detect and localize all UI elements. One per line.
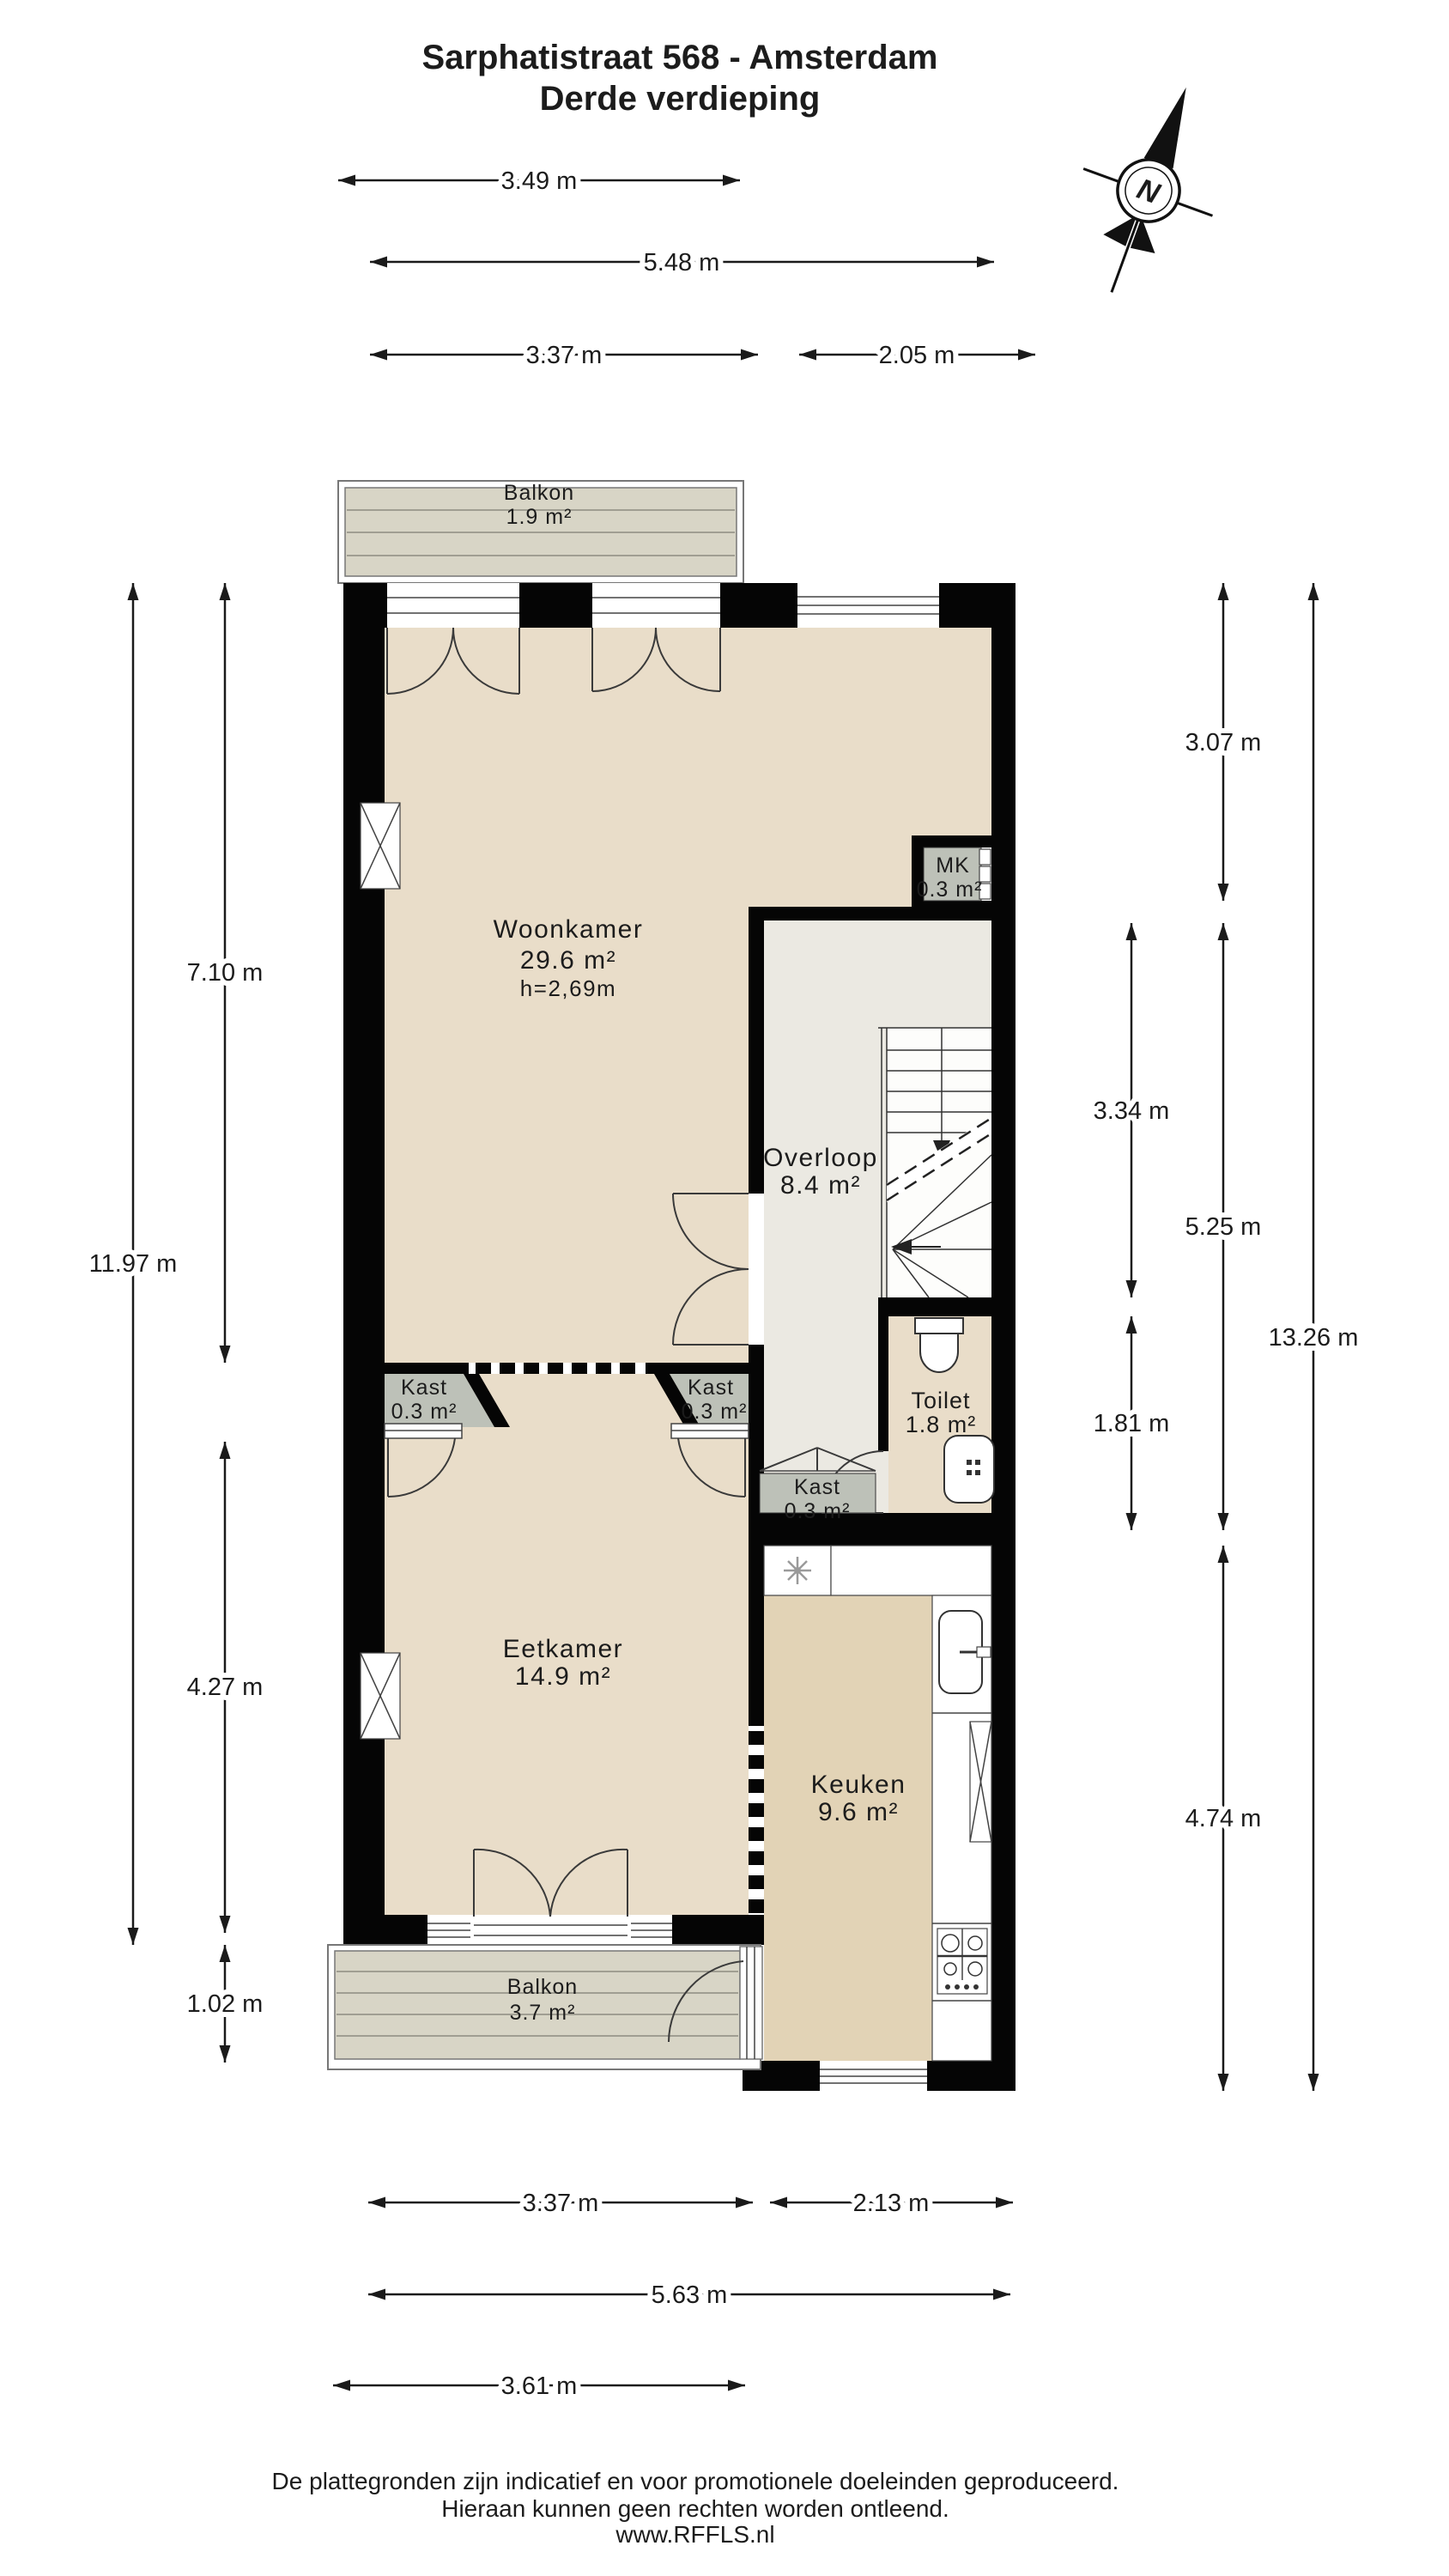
staircase <box>878 1028 991 1297</box>
dim-right-181: 1.81 m <box>1094 1410 1170 1437</box>
woonkamer-area: 29.6 m² <box>520 946 616 975</box>
balcony-top: Balkon 1.9 m² <box>338 481 743 583</box>
dim-top-337: 3.37 m <box>526 342 603 369</box>
woonkamer-name: Woonkamer <box>494 915 644 944</box>
dim-right-1326: 13.26 m <box>1269 1324 1359 1352</box>
chimney-woonkamer-icon <box>361 803 400 889</box>
dim-left-427: 4.27 m <box>187 1674 264 1701</box>
woonkamer-height: h=2,69m <box>520 975 616 1001</box>
balkon-top-area: 1.9 m² <box>506 505 573 529</box>
stove-icon <box>937 1929 987 1994</box>
window-keuken-bottom <box>820 2061 927 2091</box>
compass-rose-icon: N <box>1047 64 1251 315</box>
balkon-bottom-area: 3.7 m² <box>510 2001 576 2025</box>
keuken-name: Keuken <box>811 1771 906 1799</box>
toilet-area: 1.8 m² <box>906 1412 977 1437</box>
wall-eetkamer-bottom-right <box>672 1915 764 1945</box>
chimney-eetkamer-icon <box>361 1653 400 1739</box>
footer-disclaimer-line2: Hieraan kunnen geen rechten worden ontle… <box>441 2495 949 2522</box>
footer-website: www.RFFLS.nl <box>615 2521 774 2548</box>
wall-keuken-bottom-right <box>927 2061 1016 2091</box>
dim-bottom-213: 2.13 m <box>853 2190 930 2217</box>
wall-stair-bottom <box>878 1297 1016 1316</box>
opening-dashed-eetkamer-keuken <box>749 1726 764 1915</box>
mk-cupboard: MK 0.3 m² <box>917 848 991 902</box>
mk-area: 0.3 m² <box>917 878 983 902</box>
toilet-name: Toilet <box>911 1388 970 1413</box>
wall-overloop-upper <box>749 907 764 1194</box>
dim-top-205: 2.05 m <box>879 342 955 369</box>
dim-top-548: 5.48 m <box>644 249 720 276</box>
dim-right-474: 4.74 m <box>1185 1805 1262 1832</box>
balkon-bottom-name: Balkon <box>507 1975 578 1999</box>
dim-left-710: 7.10 m <box>187 959 264 987</box>
keuken-area: 9.6 m² <box>818 1798 899 1826</box>
washbasin-icon <box>944 1436 994 1503</box>
balkon-top-name: Balkon <box>504 481 574 505</box>
dim-left-102: 1.02 m <box>187 1990 264 2018</box>
floorplan-canvas: Sarphatistraat 568 - Amsterdam Derde ver… <box>0 0 1449 2576</box>
kast-trap-name: Kast <box>794 1475 840 1499</box>
dim-top-349: 3.49 m <box>501 167 578 195</box>
dim-right-307: 3.07 m <box>1185 729 1262 756</box>
dim-bottom-563: 5.63 m <box>652 2281 728 2309</box>
dim-bottom-337: 3.37 m <box>523 2190 599 2217</box>
overloop-area: 8.4 m² <box>780 1171 861 1200</box>
wall-mk-bottom <box>912 901 991 920</box>
page-title-line2: Derde verdieping <box>540 80 821 118</box>
kast-left-name: Kast <box>401 1376 447 1400</box>
window-top-right <box>797 583 939 628</box>
wall-right <box>991 583 1016 2091</box>
wall-eetkamer-bottom-left <box>343 1915 427 1945</box>
eetkamer-area: 14.9 m² <box>515 1662 611 1691</box>
dim-left-1197: 11.97 m <box>89 1250 178 1278</box>
opening-dashed-woonkamer-eetkamer <box>469 1363 646 1374</box>
page-title-line1: Sarphatistraat 568 - Amsterdam <box>422 39 938 76</box>
mk-name: MK <box>936 854 970 878</box>
counter-top-strip <box>831 1546 991 1595</box>
overloop-name: Overloop <box>763 1144 878 1172</box>
eetkamer-name: Eetkamer <box>503 1635 623 1663</box>
footer-disclaimer-line1: De plattegronden zijn indicatief en voor… <box>272 2468 1119 2494</box>
kast-trap-area: 0.3 m² <box>785 1499 851 1523</box>
toilet-bowl-icon <box>920 1334 958 1372</box>
dim-right-334: 3.34 m <box>1094 1097 1170 1125</box>
kast-left-area: 0.3 m² <box>391 1400 458 1424</box>
dim-bottom-361: 3.61 m <box>501 2372 578 2400</box>
wall-toilet-left <box>878 1297 888 1451</box>
floorplan-page: Sarphatistraat 568 - Amsterdam Derde ver… <box>0 0 1449 2576</box>
wall-kastrow-right <box>646 1363 749 1374</box>
balcony-bottom: Balkon 3.7 m² <box>328 1945 762 2069</box>
wall-kastrow-left <box>385 1363 469 1374</box>
dim-right-525: 5.25 m <box>1185 1213 1262 1241</box>
kast-right-name: Kast <box>688 1376 734 1400</box>
kast-right-area: 0.3 m² <box>682 1400 748 1424</box>
wall-left <box>343 583 385 1945</box>
